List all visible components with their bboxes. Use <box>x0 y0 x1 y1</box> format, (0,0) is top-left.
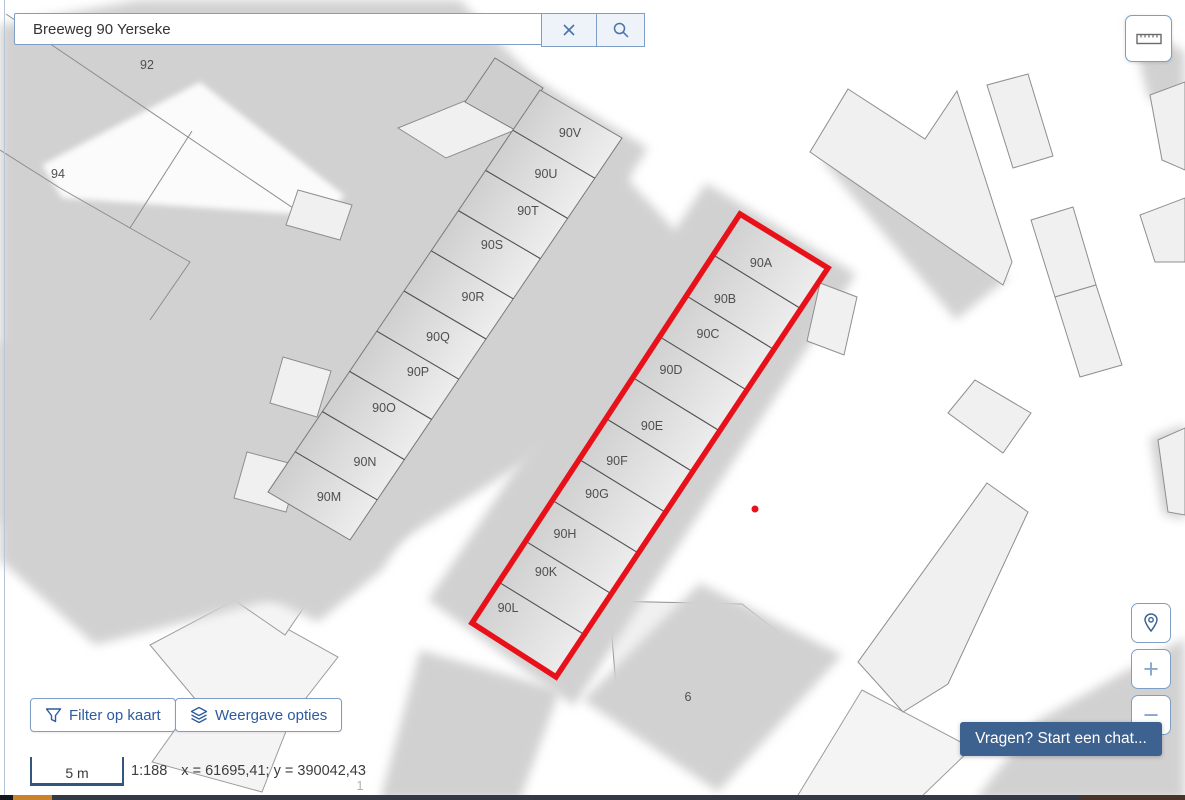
zoom-in-button[interactable]: + <box>1131 649 1171 689</box>
map-label-90P: 90P <box>407 365 429 379</box>
map-label-90C: 90C <box>697 327 720 341</box>
status-line: 1:188 x = 61695,41; y = 390042,43 <box>131 763 366 779</box>
map-label-90G: 90G <box>585 487 609 501</box>
map-canvas[interactable]: 929490V90U90T90S90R90Q90P90O90N90M90A90B… <box>0 0 1185 800</box>
x-icon <box>561 22 577 38</box>
map-label-90R: 90R <box>462 290 485 304</box>
display-options-button[interactable]: Weergave opties <box>175 698 342 732</box>
map-label-90T: 90T <box>517 204 539 218</box>
map-label-90D: 90D <box>660 363 683 377</box>
measure-tool-button[interactable] <box>1125 15 1172 62</box>
map-label-90O: 90O <box>372 401 396 415</box>
map-label-90Q: 90Q <box>426 330 450 344</box>
strip-black-segment <box>0 795 13 800</box>
map-label-94: 94 <box>51 167 65 181</box>
ruler-icon <box>1136 32 1162 46</box>
map-label-90L: 90L <box>498 601 519 615</box>
chat-button[interactable]: Vragen? Start een chat... <box>960 722 1162 756</box>
map-label-92: 92 <box>140 58 154 72</box>
layers-icon <box>190 706 208 724</box>
map-label-1: 1 <box>357 779 364 793</box>
map-label-90H: 90H <box>554 527 577 541</box>
map-label-90V: 90V <box>559 126 582 140</box>
map-label-90A: 90A <box>750 256 773 270</box>
display-button-label: Weergave opties <box>215 707 327 724</box>
scale-ratio: 1:188 <box>131 763 167 779</box>
scale-label: 5 m <box>65 763 88 783</box>
strip-brown-segment <box>1080 795 1185 800</box>
panel-edge-line <box>4 0 5 795</box>
selection-red-dot <box>752 506 759 513</box>
map-label-90S: 90S <box>481 238 503 252</box>
plus-icon: + <box>1143 654 1159 685</box>
map-viewport: 929490V90U90T90S90R90Q90P90O90N90M90A90B… <box>0 0 1185 800</box>
search-bar <box>14 13 645 47</box>
search-button[interactable] <box>596 13 645 47</box>
window-bottom-strip <box>0 795 1185 800</box>
search-input[interactable] <box>14 13 542 45</box>
map-label-90B: 90B <box>714 292 736 306</box>
cursor-coordinates: x = 61695,41; y = 390042,43 <box>181 763 366 779</box>
magnifier-icon <box>612 21 630 39</box>
funnel-icon <box>45 707 62 724</box>
strip-orange-segment <box>13 795 52 800</box>
filter-on-map-button[interactable]: Filter op kaart <box>30 698 176 732</box>
map-label-90F: 90F <box>606 454 628 468</box>
scale-bar: 5 m <box>30 757 124 786</box>
map-label-90N: 90N <box>354 455 377 469</box>
map-label-6: 6 <box>685 690 692 704</box>
locate-me-button[interactable] <box>1131 603 1171 643</box>
map-label-90U: 90U <box>535 167 558 181</box>
clear-search-button[interactable] <box>541 13 597 47</box>
map-label-90M: 90M <box>317 490 341 504</box>
map-label-90E: 90E <box>641 419 663 433</box>
map-label-90K: 90K <box>535 565 558 579</box>
map-pin-icon <box>1141 612 1161 634</box>
filter-button-label: Filter op kaart <box>69 707 161 724</box>
